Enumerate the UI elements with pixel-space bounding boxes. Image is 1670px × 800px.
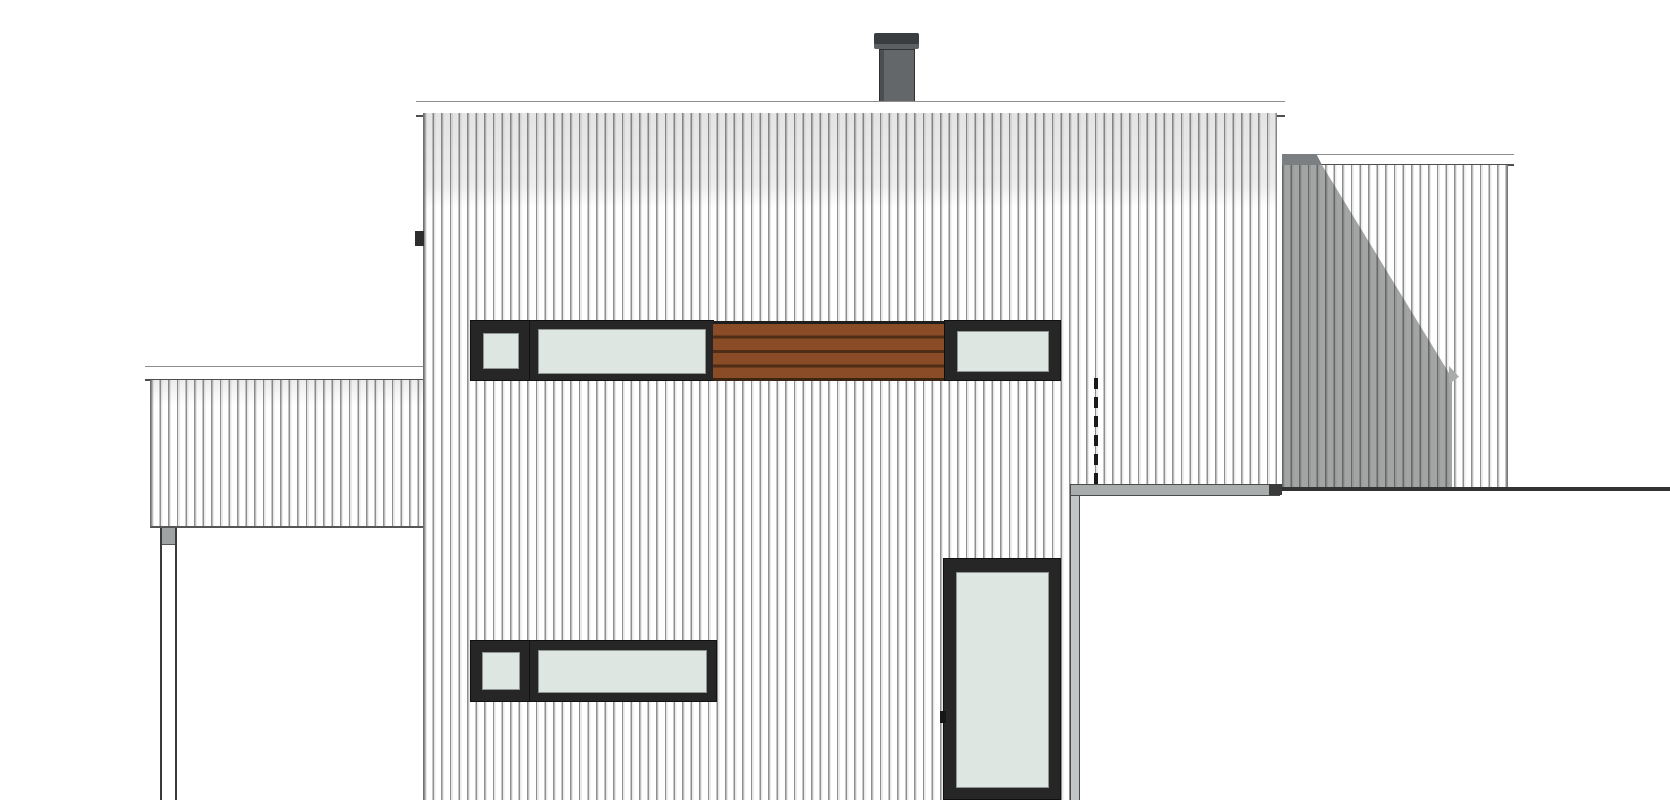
annex-wall-shade: [150, 380, 423, 406]
glazed-door-glass: [956, 572, 1049, 788]
upper-square-window-glass: [483, 333, 519, 369]
upper-long-window: [529, 320, 714, 381]
elevation-canvas: [0, 0, 1670, 800]
foreground-roof-body: [1080, 491, 1670, 800]
support-post: [160, 528, 177, 800]
chimney-body: [879, 49, 915, 103]
wall-edge-mark: [415, 231, 424, 246]
lower-long-window: [529, 640, 717, 702]
lower-square-window: [470, 640, 531, 702]
foreground-roof-topline: [1282, 487, 1670, 491]
lower-square-window-glass: [482, 652, 520, 690]
wood-slat-panel: [713, 321, 945, 381]
door-handle: [940, 711, 946, 723]
chimney-cap: [874, 33, 919, 49]
annex-fascia: [145, 366, 423, 381]
foreground-parapet-band: [1070, 484, 1280, 496]
vent-dashed-line: [1094, 378, 1098, 486]
upper-right-window: [944, 320, 1061, 381]
upper-long-window-glass: [538, 329, 706, 374]
right-wing-fascia-shadowed: [1282, 154, 1322, 165]
upper-square-window: [470, 320, 531, 381]
support-post-cap: [162, 528, 175, 545]
foreground-edge-band: [1070, 496, 1080, 800]
glazed-door: [943, 558, 1061, 800]
foreground-parapet-corner: [1269, 484, 1282, 495]
lower-long-window-glass: [538, 650, 707, 693]
upper-right-window-glass: [957, 331, 1049, 372]
